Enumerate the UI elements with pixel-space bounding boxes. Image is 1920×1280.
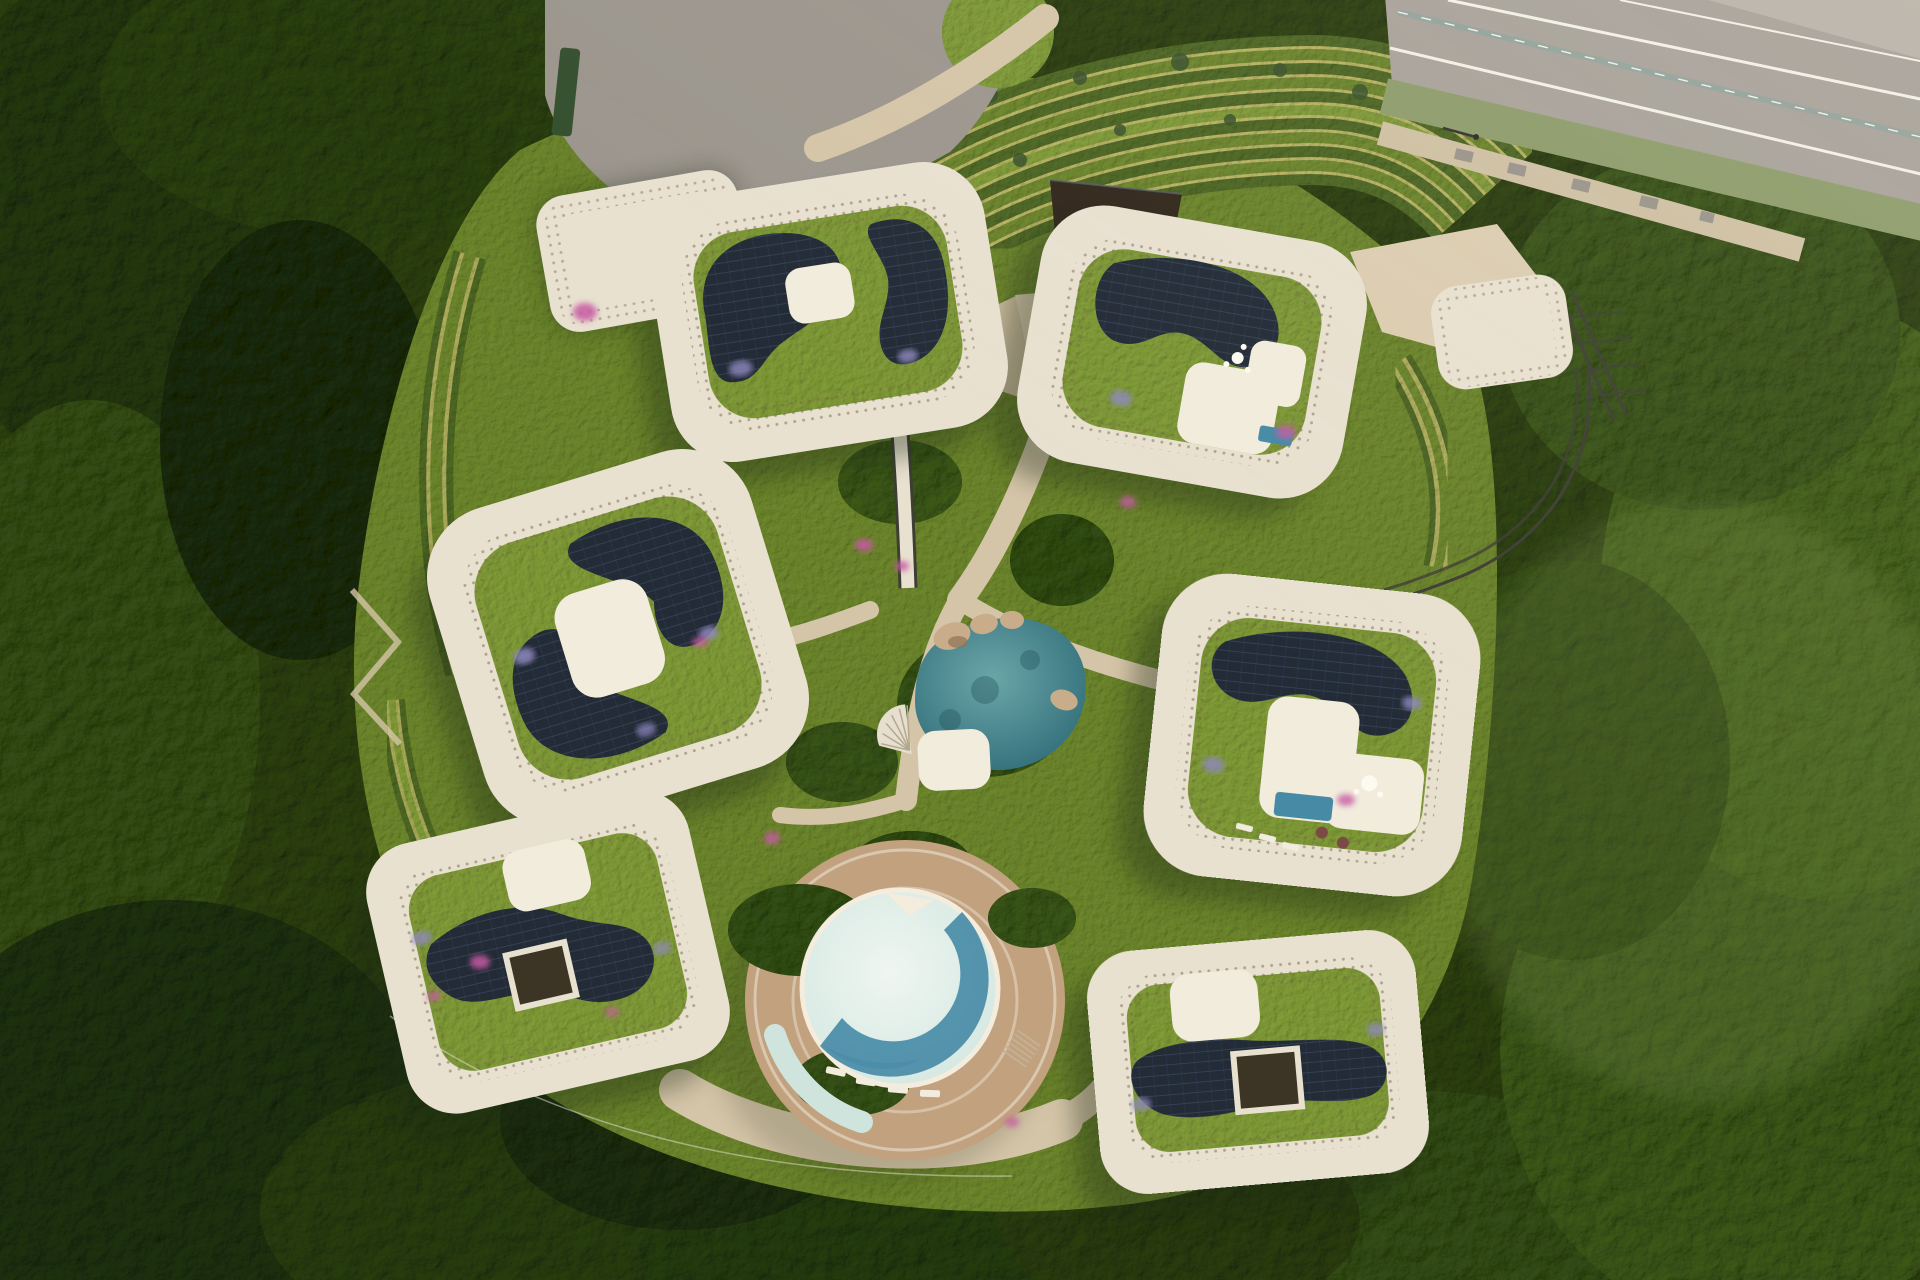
sun-glare-overlay	[0, 0, 1920, 1280]
aerial-site-render	[0, 0, 1920, 1280]
